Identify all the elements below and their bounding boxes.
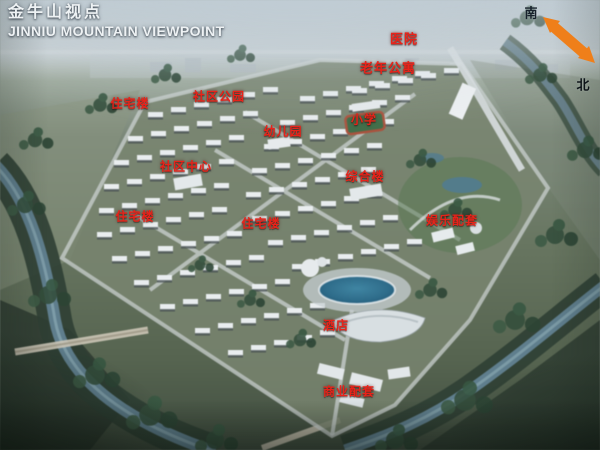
- map-label-kindergarten: 幼儿园: [263, 123, 302, 140]
- compass-south-label: 南: [524, 3, 537, 22]
- map-label-community-park: 社区公园: [193, 88, 245, 105]
- compass-north-label: 北: [576, 75, 589, 94]
- map-label-hospital: 医院: [390, 29, 418, 48]
- title-chinese: 金牛山视点: [8, 3, 225, 23]
- map-label-hotel: 酒店: [323, 317, 349, 334]
- map-label-residential-c: 住宅楼: [241, 215, 280, 232]
- map-label-commercial: 商业配套: [323, 383, 375, 400]
- map-label-primary-school: 小学: [351, 111, 377, 128]
- page-title: 金牛山视点 JINNIU MOUNTAIN VIEWPOINT: [8, 3, 225, 41]
- map-label-residential-b: 住宅楼: [115, 208, 154, 225]
- title-english: JINNIU MOUNTAIN VIEWPOINT: [8, 23, 225, 41]
- map-label-senior-apartments: 老年公寓: [360, 58, 416, 77]
- map-label-community-center: 社区中心: [160, 158, 212, 175]
- annotation-layer: 金牛山视点 JINNIU MOUNTAIN VIEWPOINT 医院 老年公寓 …: [0, 0, 600, 450]
- map-label-residential-a: 住宅楼: [110, 95, 149, 112]
- jinniu-viewpoint-rendering: 金牛山视点 JINNIU MOUNTAIN VIEWPOINT 医院 老年公寓 …: [0, 0, 600, 450]
- map-label-entertainment: 娱乐配套: [426, 212, 478, 229]
- map-label-mixed-use-building: 综合楼: [345, 168, 384, 185]
- compass-arrow-icon: [538, 12, 600, 70]
